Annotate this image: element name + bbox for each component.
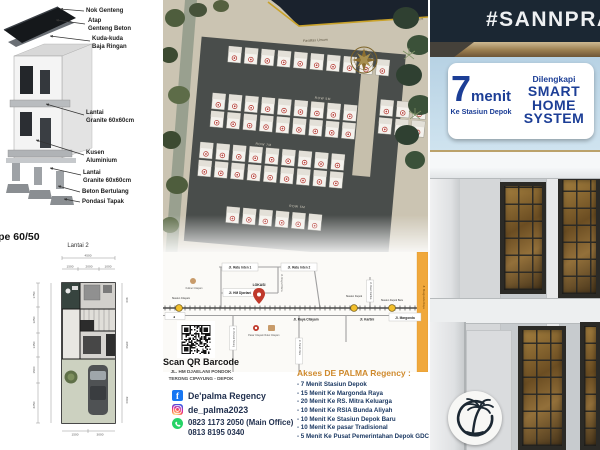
site-plan-aerial: ROW 5M ROW 7M ROW 5M Future Development … <box>163 0 428 258</box>
access-item: - 15 Menit Ke Margonda Raya <box>297 390 433 399</box>
dim-top-total: 4500 <box>85 254 92 258</box>
construction-label-nok: Nok Genteng <box>86 8 123 16</box>
fascia-band <box>430 150 600 179</box>
lower-window-right <box>580 322 600 450</box>
floorplan-lantai-2: 4500 1500 2000 1000 1750 1250 1450 1500 … <box>28 250 132 446</box>
header-band: #SANNPRA <box>430 0 600 43</box>
instagram-link[interactable]: de_palma2023 <box>172 404 293 415</box>
facebook-link[interactable]: f De'palma Regency <box>172 390 293 401</box>
whatsapp-icon <box>172 418 183 429</box>
access-item: - 10 Menit Ke RSIA Bunda Aliyah <box>297 407 433 416</box>
palm-tree-icon <box>453 396 497 440</box>
svg-text:Stasiun Depok Baru: Stasiun Depok Baru <box>381 299 404 302</box>
floor-slab <box>10 100 70 107</box>
svg-text:1000: 1000 <box>105 265 112 269</box>
svg-text:1500: 1500 <box>67 265 74 269</box>
svg-text:1450: 1450 <box>32 341 36 348</box>
street-margonda-raya: Jl. Margonda Raya <box>422 285 426 309</box>
badge-travel-time: 7menit Ke Stasiun Depok <box>448 63 514 139</box>
toll-road-strip <box>417 252 428 372</box>
qr-code <box>177 321 215 358</box>
street-dewi-sartika: Jl. Dewi Sartika <box>369 282 372 300</box>
street-raya-pitara: Jl. Raya Pitara <box>280 274 284 292</box>
svg-text:2850: 2850 <box>125 342 129 349</box>
upper-window <box>20 66 33 94</box>
construction-label-kudakuda: Kuda-kuda Baja Ringan <box>92 36 127 52</box>
svg-text:900: 900 <box>125 297 129 302</box>
office-address: JL. HM DJAELANI PONDOK TERONG CIPAYUNG -… <box>155 369 247 382</box>
badge-smart-home: Dilengkapi SMART HOME SYSTEM <box>514 63 594 139</box>
house-type-label: Tipe 60/50 <box>0 231 40 243</box>
svg-text:3000: 3000 <box>97 433 104 437</box>
street-raya-citayam: Jl. Raya Citayam <box>293 318 319 322</box>
floorplan-title: Lantai 2 <box>56 243 100 249</box>
social-links: f De'palma Regency de_palma2023 <box>172 390 293 440</box>
construction-label-kusen: Kusen Aluminium <box>86 150 117 166</box>
scan-qr-label: Scan QR Barcode <box>155 357 247 367</box>
street-pondok-terong: Jl. Pondok Terong <box>232 328 235 348</box>
street-tanah-baru: Jl. Tanah Baru <box>298 340 301 356</box>
lokasi-label: LOKASI <box>253 283 266 287</box>
svg-text:1500: 1500 <box>32 366 36 373</box>
svg-text:1250: 1250 <box>32 316 36 323</box>
depalma-logo <box>448 391 502 445</box>
upper-window-right <box>558 176 600 298</box>
facebook-icon: f <box>172 390 183 401</box>
foundation-pad <box>6 184 30 193</box>
svg-text:1500: 1500 <box>72 433 79 437</box>
access-item: - 10 Menit Ke pasar Tradisional <box>297 424 433 433</box>
svg-text:Pasar Citayam: Pasar Citayam <box>248 334 264 337</box>
west-arrow: ◄ <box>172 315 175 319</box>
access-item: - 10 Menit Ke Stasiun Depok Baru <box>297 416 433 425</box>
street-hm-djaelani: Jl. HM Djaelani <box>229 291 252 295</box>
svg-text:Kuliner Citayam: Kuliner Citayam <box>186 287 203 290</box>
construction-label-lantai-atas: Lantai Granite 60x60cm <box>86 110 134 126</box>
svg-text:Stasiun Citayam: Stasiun Citayam <box>172 297 190 300</box>
street-margonda: Jl. Margonda <box>395 316 415 320</box>
access-item: - 20 Menit Ke RS. Mitra Keluarga <box>297 398 433 407</box>
svg-text:2000: 2000 <box>86 265 93 269</box>
campaign-hashtag: #SANNPRA <box>486 8 600 32</box>
compass-icon <box>351 47 377 73</box>
upper-window-left <box>500 182 546 294</box>
phone-numbers: 0823 1173 2050 (Main Office) 0813 8195 0… <box>188 418 293 437</box>
feature-badge-card: 7menit Ke Stasiun Depok Dilengkapi SMART… <box>448 63 594 139</box>
construction-label-beton: Beton Bertulang <box>82 189 129 197</box>
floor-band <box>430 298 600 324</box>
access-list: Akses DE PALMA Regency : - 7 Menit Stasi… <box>297 368 433 442</box>
construction-label-lantai-bawah: Lantai Granite 60x60cm <box>83 170 131 186</box>
left-panel: Nok Genteng Atap Genteng Beton Kuda-kuda… <box>0 0 163 450</box>
instagram-icon <box>172 404 183 415</box>
access-item: - 7 Menit Stasiun Depok <box>297 381 433 390</box>
svg-text:Ruko Citayam: Ruko Citayam <box>264 334 279 337</box>
street-kartini: Jl. Kartini <box>360 318 375 322</box>
badge-minutes-value: 7 <box>451 68 471 109</box>
access-list-title: Akses DE PALMA Regency : <box>297 368 433 378</box>
construction-label-atap: Atap Genteng Beton <box>88 18 131 34</box>
street-ratu-inten-2: Jl. Ratu Inten 2 <box>288 266 311 270</box>
street-ratu-inten-1: Jl. Ratu Inten 1 <box>229 266 252 270</box>
right-panel: #SANNPRA 7menit Ke Stasiun Depok Dilengk… <box>430 0 600 450</box>
lower-window-left <box>518 326 566 450</box>
svg-text:Stasiun Depok: Stasiun Depok <box>346 295 363 298</box>
middle-panel: ROW 5M ROW 7M ROW 5M Future Development … <box>163 0 430 450</box>
access-item: - 5 Menit Ke Pusat Pemerintahan Depok GD… <box>297 433 433 442</box>
brochure-page: Nok Genteng Atap Genteng Beton Kuda-kuda… <box>0 0 600 450</box>
svg-text:3800: 3800 <box>125 397 129 404</box>
whatsapp-link[interactable]: 0823 1173 2050 (Main Office) 0813 8195 0… <box>172 418 293 437</box>
svg-text:2250: 2250 <box>32 401 36 408</box>
svg-text:1750: 1750 <box>32 291 36 298</box>
lower-window <box>20 112 32 136</box>
badge-destination: Ke Stasiun Depok <box>448 107 514 116</box>
construction-label-pondasi: Pondasi Tapak <box>82 199 124 207</box>
